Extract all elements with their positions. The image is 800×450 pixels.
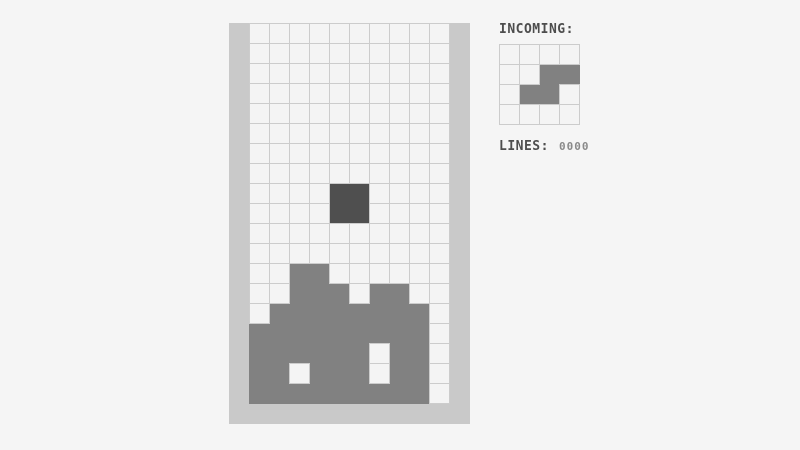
empty-cell (269, 263, 290, 284)
empty-cell (559, 84, 580, 105)
empty-cell (369, 183, 390, 204)
game-board (229, 23, 470, 424)
empty-cell (269, 123, 290, 144)
empty-cell (409, 283, 430, 304)
game-page: { "colors": { "page_bg": "#f5f5f5", "wal… (0, 0, 800, 450)
falling-piece-cell (329, 203, 350, 224)
empty-cell (329, 263, 350, 284)
empty-cell (409, 43, 430, 64)
empty-cell (409, 203, 430, 224)
lines-row: LINES: 0000 (499, 140, 589, 154)
empty-cell (429, 163, 450, 184)
empty-cell (429, 383, 450, 404)
incoming-piece-cell (559, 64, 580, 85)
empty-cell (409, 183, 430, 204)
empty-cell (309, 203, 330, 224)
incoming-piece-cell (519, 84, 540, 105)
stack-cell (269, 323, 290, 344)
empty-cell (409, 63, 430, 84)
empty-cell (429, 103, 450, 124)
empty-cell (349, 23, 370, 44)
empty-cell (429, 143, 450, 164)
empty-cell (309, 83, 330, 104)
empty-cell (329, 243, 350, 264)
empty-cell (429, 63, 450, 84)
empty-cell (289, 363, 310, 384)
empty-cell (249, 163, 270, 184)
empty-cell (369, 143, 390, 164)
empty-cell (329, 123, 350, 144)
stack-cell (349, 383, 370, 404)
empty-cell (369, 223, 390, 244)
empty-cell (429, 323, 450, 344)
empty-cell (329, 143, 350, 164)
empty-cell (409, 223, 430, 244)
empty-cell (329, 43, 350, 64)
empty-cell (289, 103, 310, 124)
empty-cell (269, 223, 290, 244)
empty-cell (249, 103, 270, 124)
empty-cell (429, 183, 450, 204)
stack-cell (329, 343, 350, 364)
empty-cell (349, 223, 370, 244)
stack-cell (249, 363, 270, 384)
empty-cell (269, 103, 290, 124)
empty-cell (519, 64, 540, 85)
incoming-label: INCOMING: (499, 23, 589, 37)
falling-piece-cell (349, 183, 370, 204)
empty-cell (389, 103, 410, 124)
empty-cell (289, 123, 310, 144)
stack-cell (349, 343, 370, 364)
empty-cell (249, 183, 270, 204)
stack-cell (389, 303, 410, 324)
empty-cell (249, 83, 270, 104)
empty-cell (519, 44, 540, 65)
empty-cell (249, 143, 270, 164)
stack-cell (289, 383, 310, 404)
empty-cell (389, 263, 410, 284)
stack-cell (269, 383, 290, 404)
stack-cell (369, 323, 390, 344)
empty-cell (349, 63, 370, 84)
empty-cell (429, 363, 450, 384)
empty-cell (499, 44, 520, 65)
stack-cell (409, 323, 430, 344)
empty-cell (329, 223, 350, 244)
empty-cell (499, 104, 520, 125)
falling-piece-cell (349, 203, 370, 224)
empty-cell (409, 103, 430, 124)
incoming-preview-grid (499, 44, 580, 125)
empty-cell (429, 203, 450, 224)
empty-cell (249, 43, 270, 64)
empty-cell (499, 64, 520, 85)
empty-cell (309, 223, 330, 244)
empty-cell (289, 143, 310, 164)
empty-cell (349, 143, 370, 164)
empty-cell (289, 163, 310, 184)
empty-cell (349, 263, 370, 284)
stack-cell (309, 303, 330, 324)
stack-cell (389, 383, 410, 404)
empty-cell (369, 163, 390, 184)
empty-cell (369, 123, 390, 144)
stack-cell (409, 363, 430, 384)
stack-cell (349, 363, 370, 384)
empty-cell (369, 343, 390, 364)
empty-cell (269, 23, 290, 44)
empty-cell (389, 83, 410, 104)
empty-cell (389, 123, 410, 144)
empty-cell (409, 23, 430, 44)
empty-cell (349, 283, 370, 304)
empty-cell (349, 103, 370, 124)
stack-cell (389, 283, 410, 304)
stack-cell (289, 323, 310, 344)
stack-cell (309, 323, 330, 344)
empty-cell (309, 163, 330, 184)
empty-cell (269, 163, 290, 184)
stack-cell (249, 323, 270, 344)
empty-cell (309, 23, 330, 44)
empty-cell (309, 243, 330, 264)
empty-cell (309, 183, 330, 204)
empty-cell (269, 143, 290, 164)
empty-cell (389, 223, 410, 244)
stack-cell (409, 303, 430, 324)
empty-cell (249, 63, 270, 84)
empty-cell (369, 243, 390, 264)
empty-cell (409, 163, 430, 184)
empty-cell (559, 104, 580, 125)
empty-cell (349, 43, 370, 64)
stack-cell (369, 383, 390, 404)
empty-cell (429, 123, 450, 144)
stack-cell (329, 383, 350, 404)
incoming-piece-cell (539, 64, 560, 85)
empty-cell (409, 123, 430, 144)
empty-cell (409, 83, 430, 104)
empty-cell (369, 363, 390, 384)
empty-cell (429, 243, 450, 264)
empty-cell (289, 83, 310, 104)
board-grid (249, 23, 450, 404)
empty-cell (249, 283, 270, 304)
empty-cell (269, 283, 290, 304)
empty-cell (369, 83, 390, 104)
empty-cell (329, 23, 350, 44)
empty-cell (249, 203, 270, 224)
empty-cell (539, 44, 560, 65)
empty-cell (349, 243, 370, 264)
empty-cell (409, 243, 430, 264)
lines-label: LINES: (499, 140, 549, 154)
empty-cell (559, 44, 580, 65)
empty-cell (389, 203, 410, 224)
empty-cell (309, 143, 330, 164)
stack-cell (369, 303, 390, 324)
empty-cell (309, 123, 330, 144)
stack-cell (389, 363, 410, 384)
empty-cell (249, 223, 270, 244)
empty-cell (289, 223, 310, 244)
empty-cell (269, 183, 290, 204)
stack-cell (249, 383, 270, 404)
stack-cell (289, 283, 310, 304)
empty-cell (369, 263, 390, 284)
empty-cell (369, 43, 390, 64)
stack-cell (349, 303, 370, 324)
empty-cell (409, 143, 430, 164)
empty-cell (369, 63, 390, 84)
empty-cell (309, 63, 330, 84)
empty-cell (269, 203, 290, 224)
empty-cell (539, 104, 560, 125)
board-floor (229, 404, 470, 424)
empty-cell (289, 183, 310, 204)
empty-cell (309, 103, 330, 124)
empty-cell (389, 63, 410, 84)
stack-cell (289, 343, 310, 364)
empty-cell (289, 243, 310, 264)
stack-cell (269, 363, 290, 384)
stack-cell (389, 343, 410, 364)
stack-cell (289, 303, 310, 324)
empty-cell (309, 43, 330, 64)
empty-cell (429, 343, 450, 364)
falling-piece-cell (329, 183, 350, 204)
empty-cell (249, 23, 270, 44)
empty-cell (389, 23, 410, 44)
empty-cell (329, 63, 350, 84)
empty-cell (289, 43, 310, 64)
empty-cell (429, 83, 450, 104)
stack-cell (409, 383, 430, 404)
empty-cell (349, 123, 370, 144)
stack-cell (249, 343, 270, 364)
empty-cell (499, 84, 520, 105)
empty-cell (429, 223, 450, 244)
incoming-piece-cell (539, 84, 560, 105)
empty-cell (369, 23, 390, 44)
empty-cell (349, 83, 370, 104)
empty-cell (249, 123, 270, 144)
stack-cell (329, 363, 350, 384)
empty-cell (249, 303, 270, 324)
empty-cell (329, 83, 350, 104)
stack-cell (269, 343, 290, 364)
stack-cell (309, 383, 330, 404)
stack-cell (309, 283, 330, 304)
empty-cell (389, 183, 410, 204)
empty-cell (409, 263, 430, 284)
empty-cell (289, 23, 310, 44)
stack-cell (309, 343, 330, 364)
board-wall-right (450, 23, 470, 404)
empty-cell (429, 23, 450, 44)
empty-cell (429, 303, 450, 324)
empty-cell (389, 43, 410, 64)
empty-cell (329, 103, 350, 124)
empty-cell (429, 43, 450, 64)
stack-cell (349, 323, 370, 344)
empty-cell (389, 243, 410, 264)
empty-cell (429, 263, 450, 284)
empty-cell (269, 63, 290, 84)
stack-cell (389, 323, 410, 344)
stack-cell (269, 303, 290, 324)
empty-cell (389, 143, 410, 164)
lines-value: 0000 (559, 140, 590, 154)
stack-cell (309, 363, 330, 384)
empty-cell (429, 283, 450, 304)
stack-cell (369, 283, 390, 304)
empty-cell (329, 163, 350, 184)
empty-cell (349, 163, 370, 184)
empty-cell (269, 243, 290, 264)
stack-cell (289, 263, 310, 284)
stack-cell (329, 303, 350, 324)
empty-cell (519, 104, 540, 125)
empty-cell (269, 83, 290, 104)
empty-cell (249, 243, 270, 264)
stack-cell (409, 343, 430, 364)
empty-cell (289, 203, 310, 224)
empty-cell (269, 43, 290, 64)
side-panel: INCOMING: LINES: 0000 (499, 23, 589, 154)
empty-cell (289, 63, 310, 84)
board-wall-left (229, 23, 249, 404)
empty-cell (249, 263, 270, 284)
empty-cell (369, 103, 390, 124)
empty-cell (369, 203, 390, 224)
stack-cell (329, 323, 350, 344)
stack-cell (309, 263, 330, 284)
stack-cell (329, 283, 350, 304)
empty-cell (389, 163, 410, 184)
